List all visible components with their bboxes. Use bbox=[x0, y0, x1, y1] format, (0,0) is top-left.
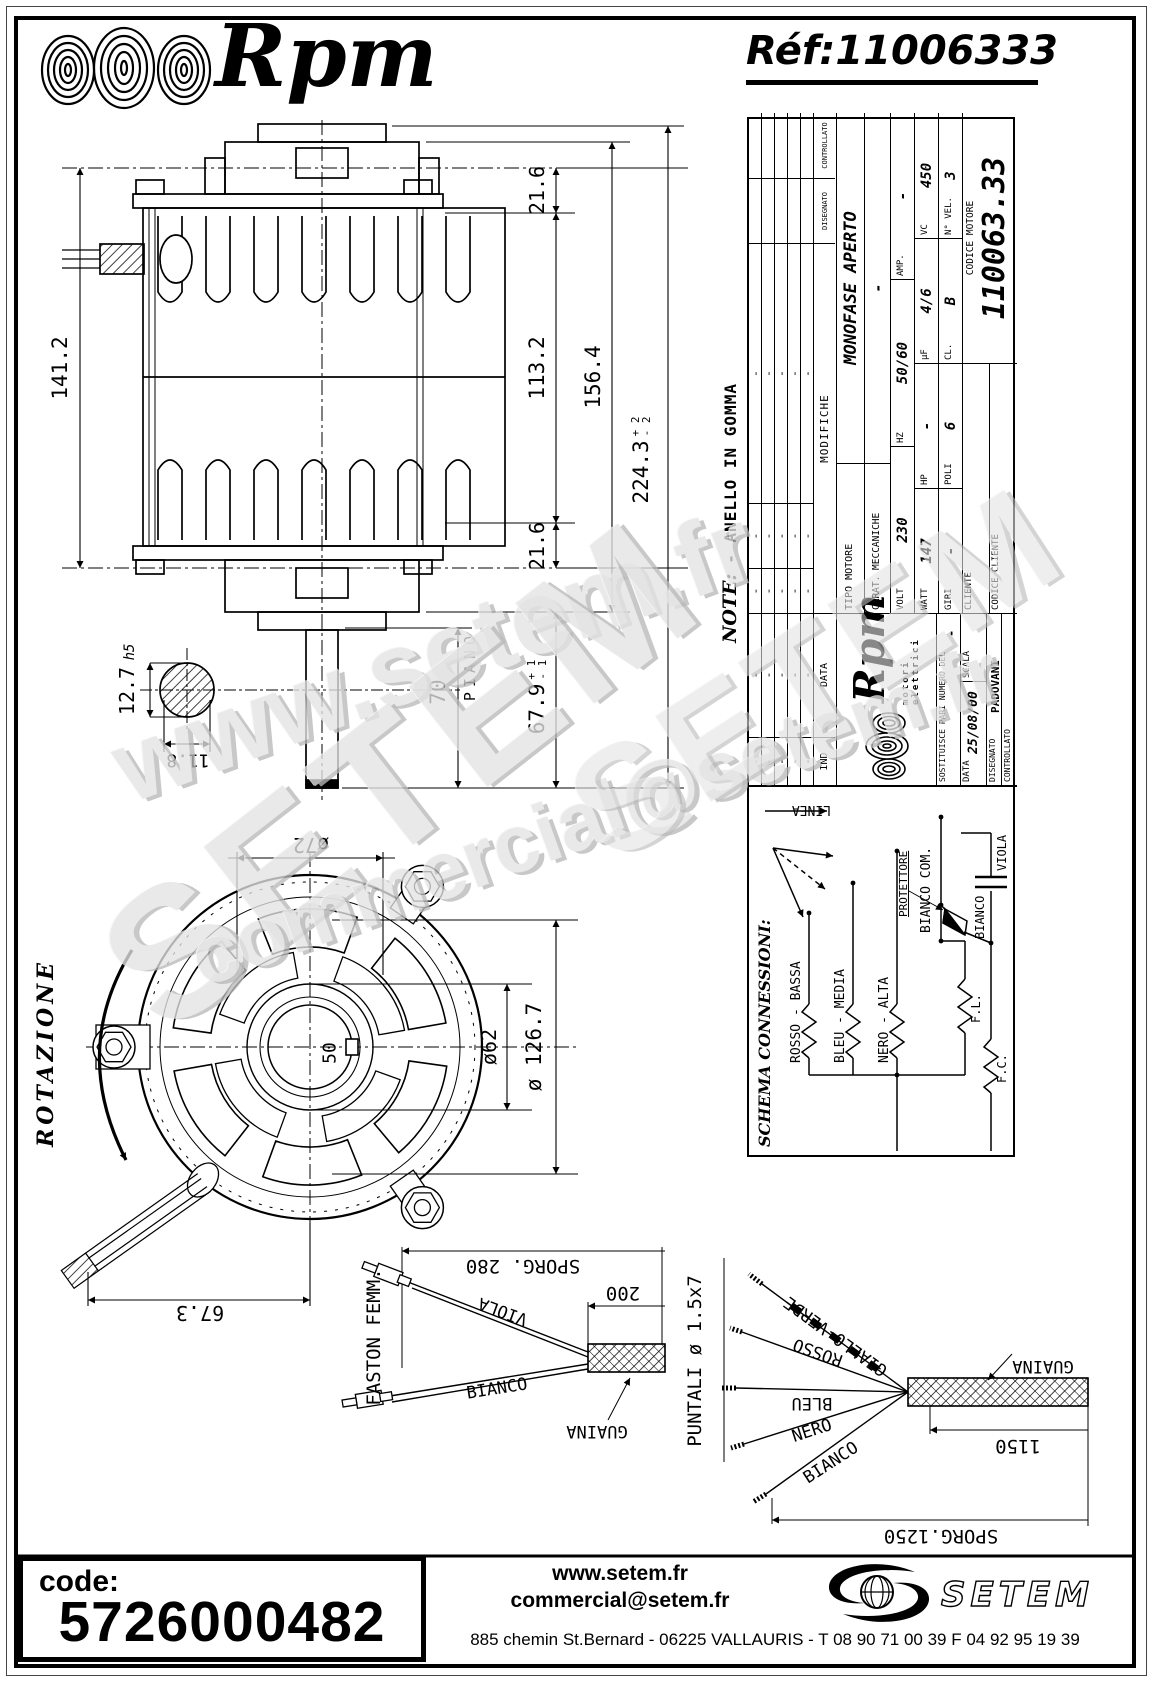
rev-row: -- bbox=[801, 613, 814, 785]
wire-bleu-label: BLEU bbox=[792, 1393, 833, 1413]
dim-21-6-top: 21.6 bbox=[525, 166, 549, 214]
reference-value: 11006333 bbox=[835, 28, 1058, 74]
schema-protettore: PROTETTORE bbox=[897, 851, 910, 917]
note-text: - ANELLO IN GOMMA bbox=[721, 383, 740, 564]
schema-fc: F.C. bbox=[995, 1054, 1009, 1083]
dim-70: 70 bbox=[426, 679, 450, 704]
electrical-row-3: GIRI- POLI6 CL.B N° VEL.3 bbox=[939, 113, 963, 613]
drawing-sheet: Rpm Réf: 11006333 141.2 21.6 113.2 21.6 … bbox=[0, 0, 1154, 1683]
sporg-1250: SPORG.1250 bbox=[884, 1525, 998, 1547]
rev-row: -- bbox=[749, 613, 762, 785]
mod-row: --- bbox=[762, 113, 775, 613]
svg-text:SETEM: SETEM bbox=[941, 1575, 1094, 1615]
mod-row: --- bbox=[801, 113, 814, 613]
rotazione-label: ROTAZIONE bbox=[33, 959, 59, 1147]
title-block-left-col: -- -- -- -- -- IND DATA bbox=[749, 613, 1017, 785]
schema-bianco: BIANCO bbox=[973, 896, 987, 939]
dim-141-2: 141.2 bbox=[48, 336, 72, 399]
tol-minus: - 2 bbox=[641, 416, 652, 436]
dim-67-9-value: 67.9 bbox=[525, 684, 549, 735]
rev-row: -- bbox=[762, 613, 775, 785]
motor-front-view bbox=[61, 852, 580, 1288]
dim-11-8: 11.8 bbox=[166, 750, 209, 771]
logo-subtext: motori elettrici bbox=[901, 613, 921, 705]
cliente-cells: CLIENTE CODICE CLIENTE bbox=[963, 363, 1017, 613]
dim-156-4: 156.4 bbox=[581, 345, 605, 408]
dim-113-2: 113.2 bbox=[525, 336, 549, 399]
dia-126-7: ø 126.7 bbox=[522, 1003, 546, 1092]
code-box: code: 5726000482 bbox=[18, 1556, 426, 1662]
guaina-label: GUAINA bbox=[1012, 1356, 1073, 1376]
dim-224-3: 224.3 + 2- 2 bbox=[629, 416, 653, 503]
mod-header: MODIFICHE DISEGNATO CONTROLLATO bbox=[814, 113, 837, 613]
title-block-rotated: NOTE: - ANELLO IN GOMMA bbox=[747, 117, 1015, 1157]
faston-label: FASTON FEMM. bbox=[363, 1268, 385, 1405]
dim-21-6-bottom: 21.6 bbox=[525, 522, 549, 570]
front-view-dimensions bbox=[88, 852, 578, 1306]
disegnato-row: DISEGNATO PADOVANI bbox=[987, 613, 1002, 785]
tol-minus: - 1 bbox=[537, 660, 548, 680]
note-label: NOTE: bbox=[719, 573, 741, 643]
dia-62: ø62 bbox=[477, 1029, 501, 1065]
fit-h5: h5 bbox=[122, 644, 138, 661]
rpm-coils-logo-icon bbox=[38, 24, 218, 112]
schema-rosso: ROSSO - BASSA bbox=[789, 961, 804, 1063]
dim-1150: 1150 bbox=[995, 1435, 1041, 1457]
title-block-main: -- -- -- -- -- IND DATA bbox=[749, 115, 1017, 787]
sostituisce-row: SOSTITUISCE PARI NUMERO DEL - bbox=[937, 613, 961, 785]
reference-label: Réf: bbox=[746, 28, 835, 74]
schema-bianco-com: BIANCO COM. bbox=[919, 847, 934, 933]
mod-row: --- bbox=[775, 113, 788, 613]
title-block-right-col: --- --- --- --- --- MODIFICHE DISEGNATO … bbox=[749, 113, 1017, 613]
schema-viola: VIOLA bbox=[995, 835, 1009, 871]
data-scala-row: DATA 25/08/00 SCALA bbox=[961, 613, 987, 785]
electrical-row-1: VOLT230 HZ50/60 AMP.- bbox=[891, 113, 915, 613]
schema-nero: NERO - ALTA bbox=[877, 977, 892, 1063]
dim-67-3: 67.3 bbox=[176, 1301, 224, 1325]
schema-title: SCHEMA CONNESSIONI: bbox=[755, 919, 774, 1147]
dim-200: 200 bbox=[606, 1282, 640, 1304]
footer-address: 885 chemin St.Bernard - 06225 VALLAURIS … bbox=[440, 1630, 1110, 1650]
piano-label: PIANO bbox=[461, 631, 479, 701]
mod-row: --- bbox=[788, 113, 801, 613]
codice-motore-cell: CODICE MOTORE 110063.33 bbox=[963, 113, 1017, 363]
dim-224-3-value: 224.3 bbox=[629, 440, 653, 503]
footer-email: commercial@setem.fr bbox=[470, 1589, 770, 1613]
guaina-label: GUAINA bbox=[566, 1421, 627, 1441]
rev-header: IND DATA bbox=[814, 613, 837, 785]
rev-row: -- bbox=[788, 613, 801, 785]
dim-67-9: 67.9 + 1- 1 bbox=[525, 660, 549, 734]
setem-logo: SETEM bbox=[815, 1560, 1105, 1624]
footer-site: www.setem.fr bbox=[470, 1562, 770, 1586]
note: NOTE: - ANELLO IN GOMMA bbox=[719, 173, 741, 643]
electrical-row-2: WATT147 HP- µF4/6 VC450 bbox=[915, 113, 939, 613]
code-value: 5726000482 bbox=[23, 1589, 421, 1655]
schema-bleu: BLEU - MEDIA bbox=[833, 969, 848, 1063]
cable-detail-puntali bbox=[722, 1258, 1088, 1526]
brand-wordmark: Rpm bbox=[215, 14, 438, 100]
rpm-coils-small-icon bbox=[845, 711, 929, 781]
rev-row: -- bbox=[775, 613, 788, 785]
logo-box: Rpm motori elettrici bbox=[837, 613, 937, 785]
dia-72: ø72 bbox=[293, 833, 329, 857]
tipo-motore-row: TIPO MOTORE MONOFASE APERTO bbox=[837, 113, 865, 613]
schema-linea: LINEA bbox=[792, 802, 831, 817]
sporg-280: SPORG. 280 bbox=[466, 1255, 580, 1277]
carat-row: CARAT. MECCANICHE - bbox=[865, 113, 891, 613]
schema-fl: F.L. bbox=[969, 994, 983, 1023]
dim-12-7: 12.7 bbox=[115, 667, 139, 715]
puntali-label: PUNTALI ø 1.5x7 bbox=[684, 1275, 706, 1447]
controllato-row: CONTROLLATO bbox=[1002, 613, 1017, 785]
mod-row: --- bbox=[749, 113, 762, 613]
reference-block: Réf: 11006333 bbox=[746, 28, 1038, 85]
dim-50: 50 bbox=[320, 1042, 341, 1064]
